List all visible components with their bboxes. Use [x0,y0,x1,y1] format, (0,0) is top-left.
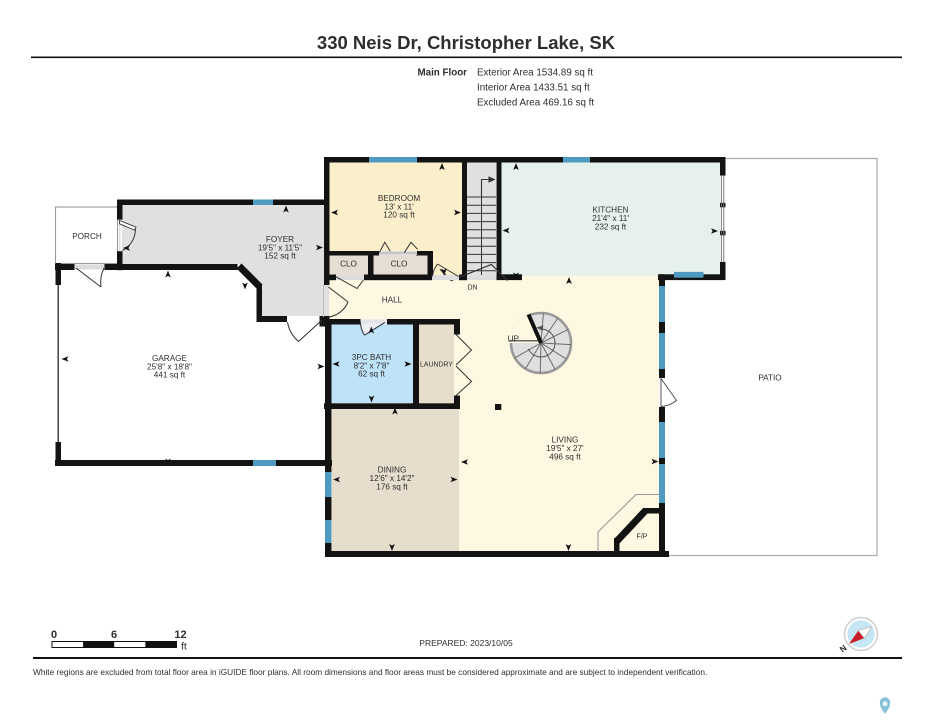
svg-text:HALL: HALL [382,296,403,305]
svg-text:441 sq ft: 441 sq ft [154,371,186,380]
svg-text:Main Floor: Main Floor [417,68,467,79]
svg-text:PATIO: PATIO [758,374,781,383]
svg-text:Interior Area 1433.51 sq ft: Interior Area 1433.51 sq ft [477,83,590,94]
svg-text:White regions are excluded fro: White regions are excluded from total fl… [33,667,707,677]
svg-text:Excluded Area 469.16 sq ft: Excluded Area 469.16 sq ft [477,98,594,109]
svg-text:LAUNDRY: LAUNDRY [420,362,453,369]
svg-text:0: 0 [51,629,57,641]
svg-text:UP: UP [508,335,520,344]
svg-text:12: 12 [174,629,186,641]
svg-text:62 sq ft: 62 sq ft [358,370,386,379]
svg-text:CLO: CLO [391,260,408,269]
svg-text:PORCH: PORCH [72,232,102,241]
svg-text:ft: ft [181,641,187,653]
svg-text:120 sq ft: 120 sq ft [383,211,415,220]
svg-text:Exterior Area 1534.89 sq ft: Exterior Area 1534.89 sq ft [477,68,593,79]
svg-text:PREPARED: 2023/10/05: PREPARED: 2023/10/05 [419,638,513,648]
svg-text:152 sq ft: 152 sq ft [264,252,296,261]
svg-text:DN: DN [467,285,477,292]
svg-text:496 sq ft: 496 sq ft [549,452,581,461]
svg-text:330 Neis Dr, Christopher Lake,: 330 Neis Dr, Christopher Lake, SK [317,32,616,53]
svg-text:6: 6 [111,629,117,641]
svg-text:F/P: F/P [637,534,648,541]
svg-text:CLO: CLO [340,260,357,269]
svg-text:176 sq ft: 176 sq ft [376,483,408,492]
svg-text:232 sq ft: 232 sq ft [595,222,627,231]
